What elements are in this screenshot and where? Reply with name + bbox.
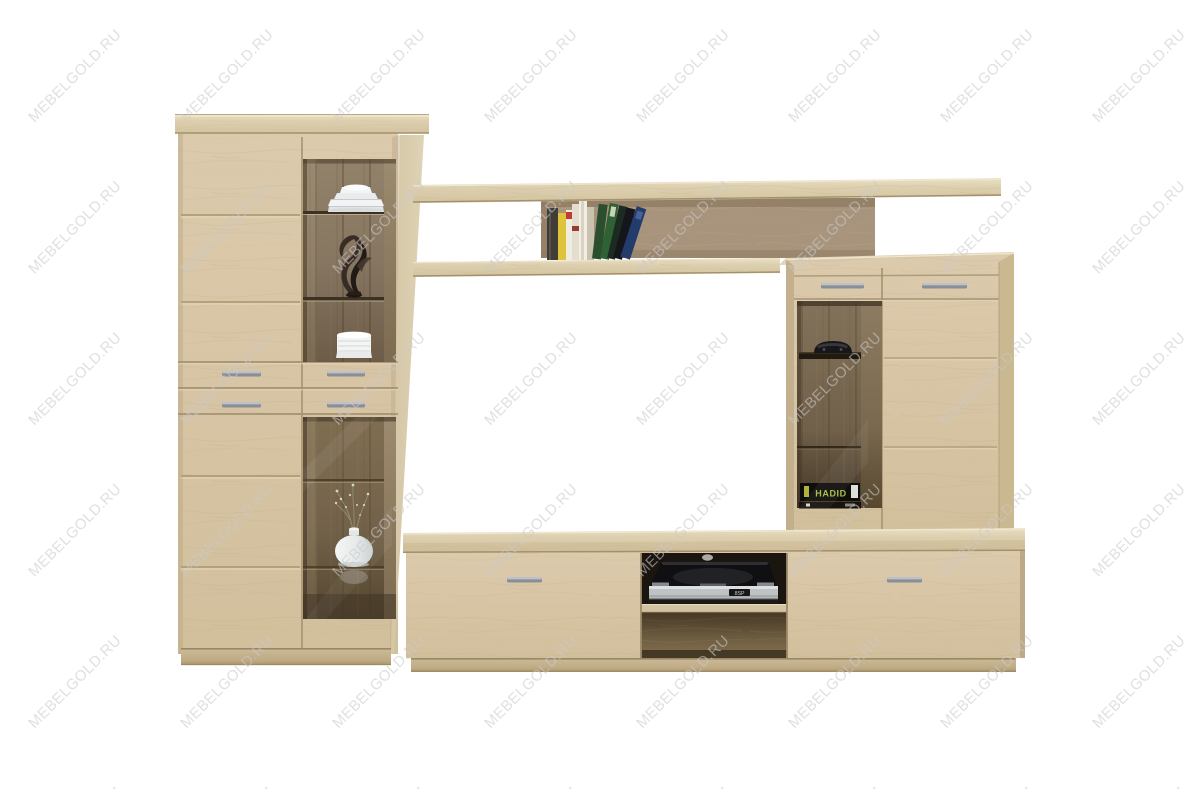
svg-text:8SP: 8SP xyxy=(735,591,745,597)
